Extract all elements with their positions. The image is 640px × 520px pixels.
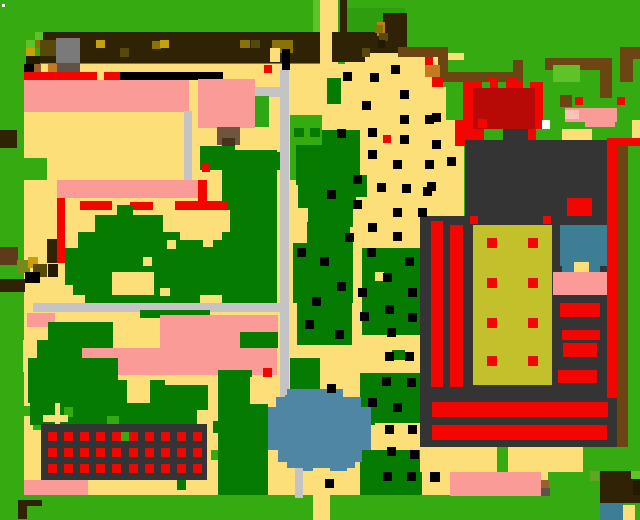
dirt-spec [282,49,290,70]
dirt-spec [24,64,34,72]
dirt-spec [375,25,383,33]
field_red-dot [528,278,538,288]
sand-path-vertical [313,468,330,520]
tree-dot [385,425,394,434]
pond [268,407,371,450]
dirt-spec [251,40,260,48]
dirt-spec [120,48,129,57]
red-road [130,202,153,210]
field_red-dot [528,356,538,366]
tree-dot [385,305,394,314]
path-gray [295,468,303,498]
tree-dot [383,472,392,481]
teal-pool [560,225,607,266]
path-gray [280,375,287,395]
field_red-dot [487,238,497,248]
tree-dot [405,352,414,361]
brown-dot [541,480,549,488]
parking_red-dot [96,448,105,457]
sand-strip [43,415,68,422]
tree-dot [337,129,346,138]
parking_red-dot [193,464,202,473]
tree-dot [408,313,417,322]
tree-dot [327,190,336,199]
red-dot [425,57,433,65]
red-roof [455,120,464,146]
dirt-spec [35,32,43,40]
red-road [57,198,65,263]
path-gray-vertical [280,70,289,397]
field_red-dot [528,318,538,328]
olive-dot [590,471,599,481]
parking_red-dot [64,464,73,473]
dirt-spec [34,64,41,72]
dirt-spec [378,40,385,48]
dirt-spec [48,264,58,277]
trees [327,78,341,104]
trees [218,370,252,495]
parking_red-dot [112,432,121,441]
parking_red-dot [48,448,57,457]
sand-pocket [160,288,170,296]
red-dot [617,97,625,105]
trail-brown [620,58,633,82]
sand-patch [562,129,592,140]
trail-brown [560,95,572,107]
sand-pocket [203,239,213,247]
trees [65,248,80,265]
tree-dot [358,288,367,297]
tree-dot [427,182,436,191]
tree-dot [320,257,329,266]
tree-dot [407,472,416,481]
parking_red-dot [161,464,170,473]
red-dot [478,119,487,128]
red-road [198,180,207,202]
trees [290,358,320,392]
red-bar [560,303,600,317]
trees [296,145,348,185]
sand-strip [28,430,42,480]
grass-square [121,432,129,441]
teal-pool [600,503,623,520]
red-bar [432,425,607,440]
roof-dark [503,129,528,140]
tree-dot [312,297,321,306]
dirt-spec [240,40,250,48]
trees-spec [310,128,320,137]
dirt-spec [40,40,56,56]
tree-dot [345,233,354,242]
tree-dot [410,450,419,459]
dirt-spec [47,239,57,263]
field_red-dot [487,278,497,288]
tree-dot [337,282,346,291]
dirt-spec [26,56,40,64]
tree-dot [353,200,362,209]
tree-dot [370,73,379,82]
roof-gap [592,129,607,140]
dirt-spec [160,40,169,48]
red-dot [263,368,271,376]
dirt-spec [48,64,57,72]
grass-square [631,471,640,479]
field_red-dot [487,356,497,366]
gray-dot [541,488,550,496]
tree-dot [362,101,371,110]
hedge-inner [240,332,278,348]
tree-dot [432,113,441,122]
parking_red-dot [177,464,186,473]
tree-dot [418,208,427,217]
red-block [567,198,592,216]
clearing-light [553,65,580,82]
parking_red-dot [145,432,154,441]
roof-gap [487,129,503,140]
tree-dot [377,183,386,192]
tree-dot [368,223,377,232]
tree-dot [400,135,409,144]
trees [150,385,208,410]
parking_red-dot [193,432,202,441]
tree-dot [382,377,391,386]
tree-dot [367,248,376,257]
sand-strip [88,480,220,495]
tree-dot [305,320,314,329]
sand-wedge [112,272,154,295]
tree-dot [368,398,377,407]
sand-pocket [623,505,635,520]
tree-dot [297,248,306,257]
tree-dot [327,384,336,393]
parking_red-dot [64,432,73,441]
field_red-dot [487,318,497,328]
trees-hedge [222,150,277,303]
grass-light-strip [313,0,320,32]
tree-dot [402,184,411,193]
parking_red-dot [48,432,57,441]
post-brown [18,500,27,519]
tree-dot [353,175,362,184]
shed-roof [56,38,80,63]
red-road [175,201,207,210]
tree-dot [400,115,409,124]
parking_red-dot [64,448,73,457]
tree-dot [393,403,402,412]
field_red-dot [528,238,538,248]
tree-dot [325,479,334,488]
tree-dot [368,128,377,137]
parking_red-dot [112,464,121,473]
sand-pocket [287,222,307,243]
tree-dot [360,312,369,321]
parking_red-dot [80,448,89,457]
dirt-blob [600,495,618,503]
parking_red-dot [129,448,138,457]
parking_red-dot [96,432,105,441]
grass-strip [628,152,640,447]
tree-dot [408,425,417,434]
dirt-spec [0,279,25,292]
dirt-spec [96,40,105,48]
sand-pocket [250,377,268,404]
tree-dot [408,288,417,297]
roof-gap [535,129,562,140]
pink-strip [24,480,88,495]
sand-pocket [167,240,176,249]
red-lane [431,221,443,387]
tree-dot [387,447,396,456]
sand-pocket [541,472,548,480]
parking_red-dot [145,464,154,473]
dirt-dark [633,481,640,495]
sand-pocket [203,210,230,232]
tree-dot [447,157,456,166]
pink-building [585,120,615,127]
red-roof [528,129,536,140]
trail-brown [600,58,612,98]
red-dot [432,77,443,87]
red-dot [575,97,583,105]
dirt-spec [25,272,40,283]
grass-blob [24,158,47,180]
pink-building [57,180,202,198]
tree-dot [405,257,414,266]
tree-dot [391,65,400,74]
tree-dot [393,160,402,169]
pink-building-light [565,110,579,119]
red-lane [450,225,463,387]
parking_red-dot [129,464,138,473]
parking_red-dot [48,464,57,473]
dirt-spec [0,247,18,265]
tree-dot [400,90,409,99]
red-bar [432,402,608,417]
sand-pocket [143,257,152,266]
parking_red-dot [161,448,170,457]
tree-dot [407,378,416,387]
parking_red-dot [112,448,121,457]
pink-building [450,472,541,496]
parking_red-dot [129,432,138,441]
olive-field [473,225,552,385]
tree-dot [432,140,441,149]
pink-building [198,79,255,128]
tree-dot [383,273,392,282]
tree-dot [387,328,396,337]
red-road [104,72,120,80]
dirt-spec [362,48,370,57]
tree-dot [385,352,394,361]
parking_red-dot [161,432,170,441]
red-dot [383,135,391,143]
parking_red-dot [80,432,89,441]
grass-gap [497,447,508,472]
dirt-block [0,130,17,148]
dirt-spec [26,40,35,48]
dirt-notch [383,13,407,50]
hedge-mid [255,96,269,127]
parking_red-dot [193,448,202,457]
dirt-spec [425,65,440,77]
tree-dot [425,160,434,169]
pink-building [24,80,189,112]
shed-base [56,63,80,72]
black-dot [430,472,440,482]
parking_red-dot [177,448,186,457]
path-gray-vertical [184,111,192,180]
tree-dot [368,150,377,159]
sand-pocket [127,378,150,403]
dirt-notch [340,0,347,33]
trees-spec [294,128,304,137]
trees [250,404,268,495]
parking_red-dot [177,432,186,441]
trail-brown-vertical [617,146,628,447]
cursor-dot [2,4,5,7]
trees [253,152,283,170]
parking_red-dot [80,464,89,473]
red-dot [264,65,272,73]
red-dot [202,164,210,172]
parking_red-dot [96,464,105,473]
pink-building [553,272,608,295]
red-lane [607,138,617,398]
trail-brown [513,60,523,74]
dirt-spec [26,48,35,56]
red-bar [558,370,597,383]
tree-dot [393,208,402,217]
red-dot [470,216,478,224]
tree-dot [335,330,344,339]
tree-dot [343,72,352,81]
tree-dot [393,232,402,241]
sand-notch [270,48,280,62]
grass-square [22,406,30,416]
trees-dot [177,480,186,490]
pixel-map[interactable] [0,0,640,520]
red-road [207,201,227,210]
red-road [80,201,112,210]
parking_red-dot [145,448,154,457]
red-dot [543,216,551,224]
red-road [24,72,97,80]
red-bar [562,330,600,340]
dirt-strip [332,32,365,62]
red-bar [563,343,597,357]
